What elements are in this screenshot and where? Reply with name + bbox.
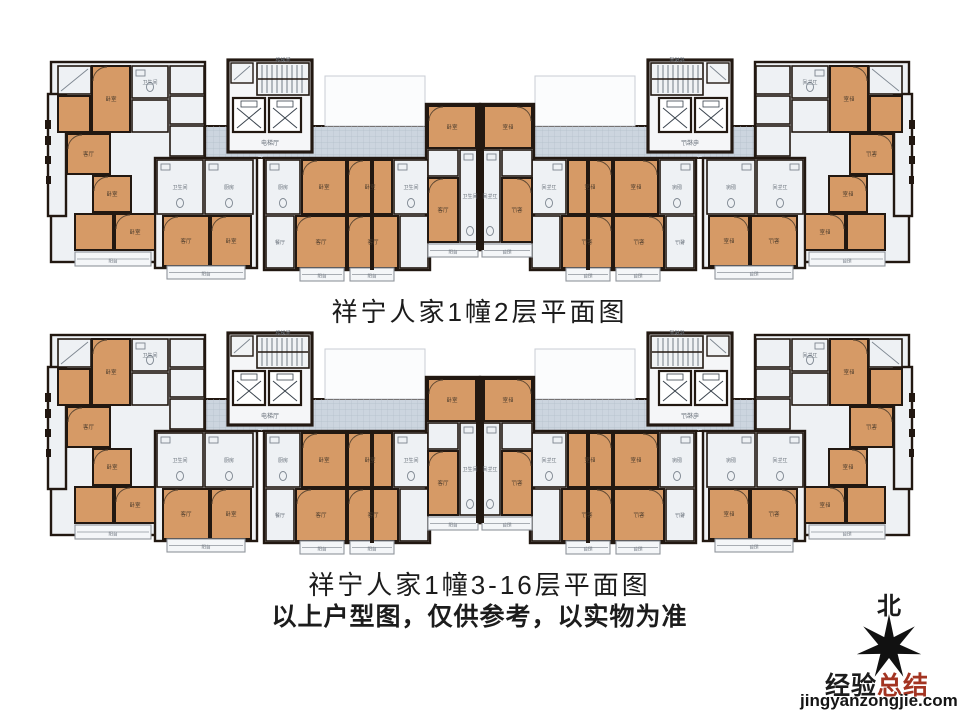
plan-title-floor2: 祥宁人家1幢2层平面图 <box>0 292 959 329</box>
brand-domain-text: jingyanzongjie.com <box>800 691 952 711</box>
north-label: 北 <box>872 586 906 621</box>
disclaimer-text: 以上户型图，仅供参考，以实物为准 <box>0 597 959 633</box>
plan-floor-2 <box>45 57 915 282</box>
floor-plan-page: 电梯厅楼梯间卧室客厅卧室卧室客厅卧室卧室卧室客厅客厅卧室客厅卫生间卫生间厨房厨房… <box>0 0 959 719</box>
plan-floor-3-16 <box>45 330 915 555</box>
